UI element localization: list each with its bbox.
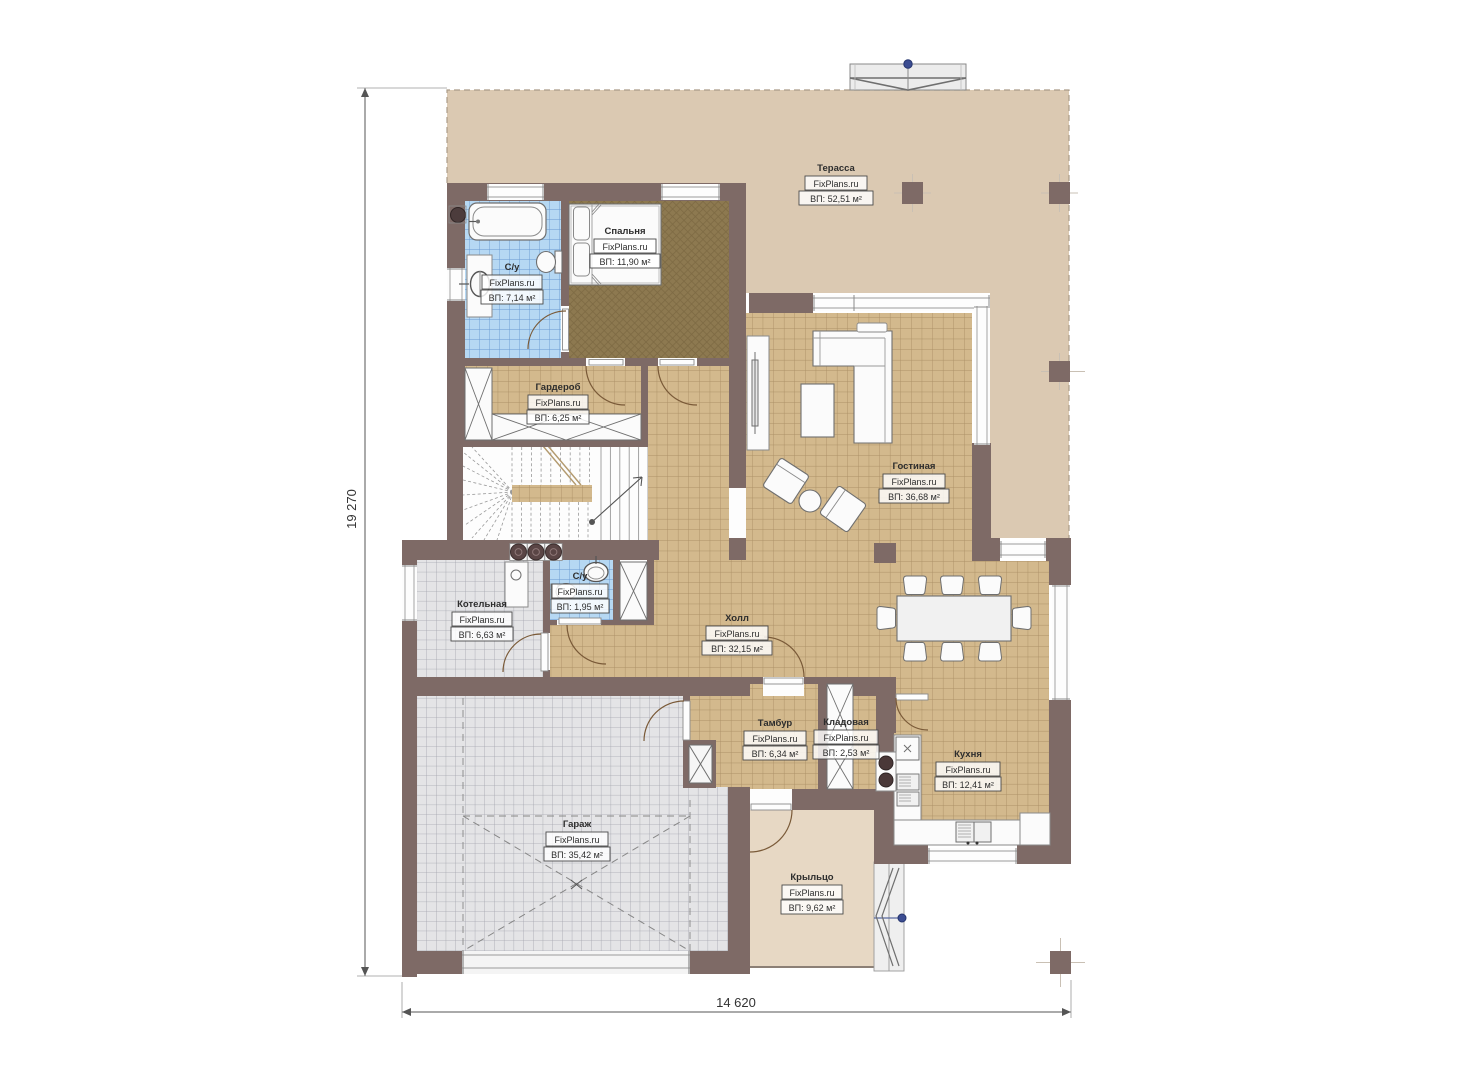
svg-text:FixPlans.ru: FixPlans.ru xyxy=(789,888,834,898)
svg-text:ВП: 1,95 м²: ВП: 1,95 м² xyxy=(557,602,604,612)
svg-text:Кладовая: Кладовая xyxy=(823,717,869,728)
svg-text:Терасса: Терасса xyxy=(817,163,855,174)
svg-text:ВП: 32,15 м²: ВП: 32,15 м² xyxy=(711,644,763,654)
svg-text:ВП: 52,51 м²: ВП: 52,51 м² xyxy=(810,194,862,204)
svg-text:С/у: С/у xyxy=(573,571,589,582)
svg-text:ВП: 12,41 м²: ВП: 12,41 м² xyxy=(942,780,994,790)
svg-text:FixPlans.ru: FixPlans.ru xyxy=(714,629,759,639)
svg-text:ВП: 6,63 м²: ВП: 6,63 м² xyxy=(459,630,506,640)
svg-text:ВП: 36,68 м²: ВП: 36,68 м² xyxy=(888,492,940,502)
svg-text:FixPlans.ru: FixPlans.ru xyxy=(459,615,504,625)
svg-text:Крыльцо: Крыльцо xyxy=(790,872,833,883)
svg-text:FixPlans.ru: FixPlans.ru xyxy=(554,835,599,845)
svg-text:С/у: С/у xyxy=(505,262,521,273)
svg-text:FixPlans.ru: FixPlans.ru xyxy=(557,587,602,597)
svg-text:Холл: Холл xyxy=(725,613,749,624)
svg-text:Тамбур: Тамбур xyxy=(758,718,793,729)
svg-text:Котельная: Котельная xyxy=(457,599,507,610)
svg-text:ВП: 2,53 м²: ВП: 2,53 м² xyxy=(823,748,870,758)
svg-text:Кухня: Кухня xyxy=(954,749,982,760)
svg-text:ВП: 6,25 м²: ВП: 6,25 м² xyxy=(535,413,582,423)
svg-text:19 270: 19 270 xyxy=(344,489,359,529)
svg-text:FixPlans.ru: FixPlans.ru xyxy=(535,398,580,408)
svg-text:ВП: 11,90 м²: ВП: 11,90 м² xyxy=(599,257,650,267)
svg-text:FixPlans.ru: FixPlans.ru xyxy=(489,278,534,288)
svg-text:FixPlans.ru: FixPlans.ru xyxy=(945,765,990,775)
svg-text:FixPlans.ru: FixPlans.ru xyxy=(813,179,858,189)
svg-text:FixPlans.ru: FixPlans.ru xyxy=(602,242,647,252)
svg-text:ВП: 6,34 м²: ВП: 6,34 м² xyxy=(752,749,799,759)
svg-text:Гараж: Гараж xyxy=(563,819,592,830)
svg-text:FixPlans.ru: FixPlans.ru xyxy=(823,733,868,743)
svg-text:Спальня: Спальня xyxy=(604,226,645,237)
svg-text:FixPlans.ru: FixPlans.ru xyxy=(752,734,797,744)
svg-text:Гостиная: Гостиная xyxy=(893,461,936,472)
svg-text:ВП: 35,42 м²: ВП: 35,42 м² xyxy=(551,850,603,860)
svg-text:FixPlans.ru: FixPlans.ru xyxy=(891,477,936,487)
svg-text:ВП: 7,14 м²: ВП: 7,14 м² xyxy=(489,293,536,303)
svg-text:14 620: 14 620 xyxy=(716,995,756,1010)
svg-text:ВП: 9,62 м²: ВП: 9,62 м² xyxy=(789,903,836,913)
svg-text:Гардероб: Гардероб xyxy=(536,382,581,393)
